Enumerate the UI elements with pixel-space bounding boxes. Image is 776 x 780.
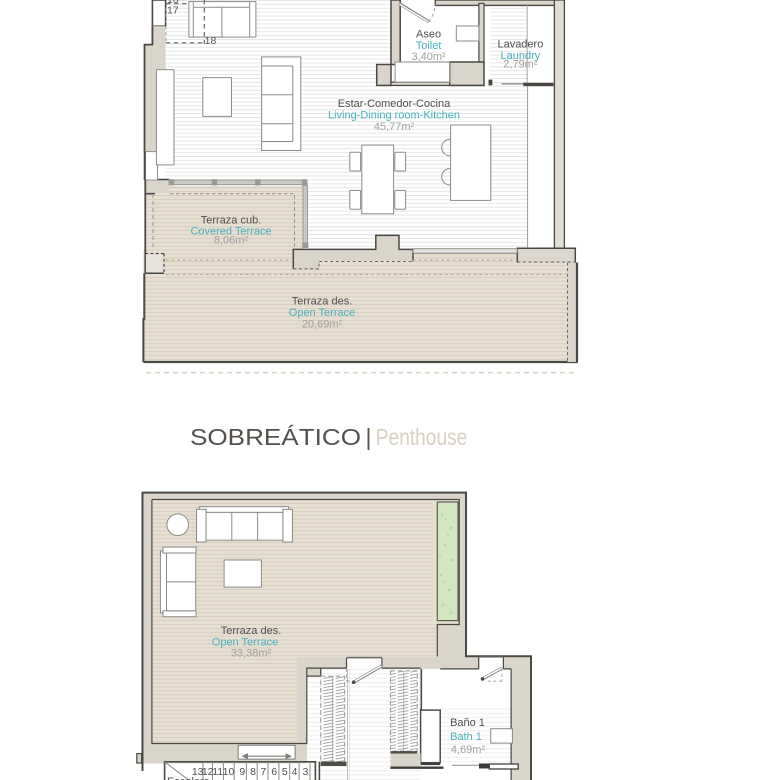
svg-text:17: 17 [167, 5, 179, 17]
svg-text:Open Terrace: Open Terrace [289, 307, 355, 319]
svg-text:7: 7 [260, 766, 266, 778]
svg-text:10: 10 [223, 766, 235, 778]
svg-text:8: 8 [250, 766, 256, 778]
svg-text:|: | [366, 424, 372, 450]
svg-text:Penthouse: Penthouse [376, 424, 468, 450]
svg-text:20,69m²: 20,69m² [302, 319, 343, 331]
svg-text:3: 3 [302, 766, 308, 778]
svg-text:Living-Dining room-Kitchen: Living-Dining room-Kitchen [328, 110, 460, 122]
svg-text:8,06m²: 8,06m² [214, 235, 249, 247]
svg-text:9: 9 [239, 766, 245, 778]
svg-text:Bath 1: Bath 1 [450, 731, 482, 743]
svg-text:11: 11 [212, 766, 223, 778]
svg-text:Terraza des.: Terraza des. [292, 296, 353, 308]
svg-text:Estar-Comedor-Cocina: Estar-Comedor-Cocina [338, 98, 451, 110]
svg-text:4,69m²: 4,69m² [451, 744, 486, 756]
svg-text:Baño 1: Baño 1 [450, 717, 485, 729]
svg-text:Lavadero: Lavadero [497, 39, 543, 51]
svg-text:33,38m²: 33,38m² [231, 648, 272, 660]
svg-text:6: 6 [271, 766, 277, 778]
svg-text:3,40m²: 3,40m² [411, 51, 446, 63]
svg-text:4: 4 [292, 766, 298, 778]
svg-text:Escalera: Escalera [167, 776, 211, 780]
svg-text:SOBREÁTICO: SOBREÁTICO [190, 424, 361, 450]
svg-text:5: 5 [282, 766, 288, 778]
svg-text:Aseo: Aseo [416, 29, 441, 41]
svg-text:Terraza des.: Terraza des. [221, 625, 282, 637]
svg-text:45,77m²: 45,77m² [374, 121, 415, 133]
svg-text:18: 18 [205, 35, 217, 47]
svg-text:2,79m²: 2,79m² [503, 59, 538, 71]
